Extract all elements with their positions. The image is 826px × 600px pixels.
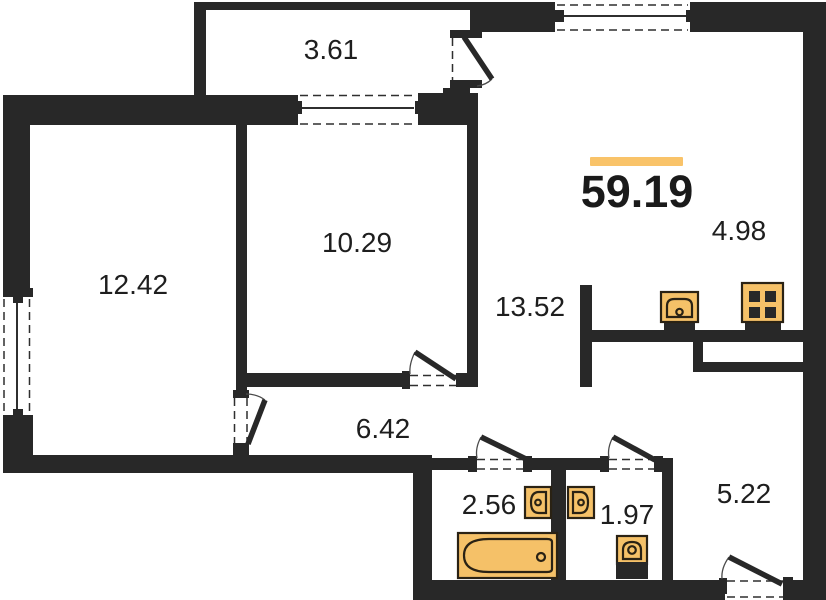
left-window — [4, 299, 30, 413]
balcony-window — [300, 96, 416, 125]
wall-segment — [3, 95, 30, 288]
floor-plan-canvas: 59.19 3.61 12.42 10.29 13.52 4.98 6.42 2… — [0, 0, 826, 600]
window-sill — [3, 288, 33, 297]
kitchen-sink-icon — [661, 292, 698, 331]
door-jamb — [402, 371, 410, 389]
total-area-label: 59.19 — [581, 166, 694, 217]
wall-segment — [662, 458, 673, 582]
room-area-label-living: 13.52 — [495, 291, 565, 322]
door-jamb — [233, 443, 249, 455]
wall-segment — [3, 95, 298, 125]
wall-segment — [432, 458, 468, 470]
wall-segment — [3, 424, 33, 455]
room-1-door — [235, 394, 266, 444]
room-area-label-kitchen: 4.98 — [712, 215, 767, 246]
wall-segment — [467, 95, 478, 373]
wash-basin-icon — [525, 487, 551, 518]
window-jamb — [415, 101, 424, 114]
total-area-block: 59.19 — [581, 157, 694, 217]
fixtures — [458, 283, 783, 579]
room-2-door — [410, 352, 456, 386]
stove-icon — [742, 283, 783, 331]
bathtub-icon — [458, 533, 557, 578]
door-jamb — [450, 80, 482, 88]
toilet-icon — [616, 536, 648, 579]
wash-basin-icon — [568, 487, 594, 518]
door-jamb — [468, 456, 477, 472]
wc-door — [609, 437, 656, 469]
room-area-label-hallway: 5.22 — [717, 478, 772, 509]
door-jamb — [719, 578, 727, 594]
accent-bar — [590, 157, 683, 166]
wall-segment — [194, 2, 206, 95]
room-area-label-room-2: 10.29 — [322, 227, 392, 258]
wall-segment — [803, 32, 826, 580]
wall-segment — [194, 2, 470, 10]
door-jamb — [783, 577, 793, 600]
wall-segment — [690, 2, 826, 32]
window-sill — [3, 415, 33, 424]
room-area-label-balcony: 3.61 — [304, 34, 359, 65]
balcony-door — [453, 37, 493, 86]
window-jamb — [555, 10, 564, 22]
window-jamb — [686, 10, 695, 22]
wall-segment — [693, 362, 806, 372]
wall-segment — [236, 125, 247, 390]
wall-segment — [413, 580, 725, 600]
room-area-label-bathroom: 2.56 — [462, 489, 517, 520]
wall-segment — [443, 88, 470, 96]
room-area-label-wc: 1.97 — [600, 499, 655, 530]
wall-segment — [3, 455, 432, 473]
walls — [3, 2, 826, 600]
window-sill — [13, 297, 23, 303]
wall-segment — [413, 460, 432, 580]
wall-segment — [470, 2, 555, 32]
kitchen-window — [557, 5, 688, 30]
window-jamb — [293, 101, 302, 114]
wall-segment — [585, 330, 806, 342]
door-jamb — [600, 456, 609, 472]
wall-segment — [236, 373, 402, 387]
door-jamb — [456, 373, 478, 387]
bathroom-door — [477, 437, 529, 469]
window-sill — [13, 409, 23, 415]
floor-plan: 59.19 3.61 12.42 10.29 13.52 4.98 6.42 2… — [0, 0, 826, 600]
room-area-label-corridor: 6.42 — [356, 413, 411, 444]
entry-door — [722, 557, 783, 597]
room-area-label-room-1: 12.42 — [98, 269, 168, 300]
